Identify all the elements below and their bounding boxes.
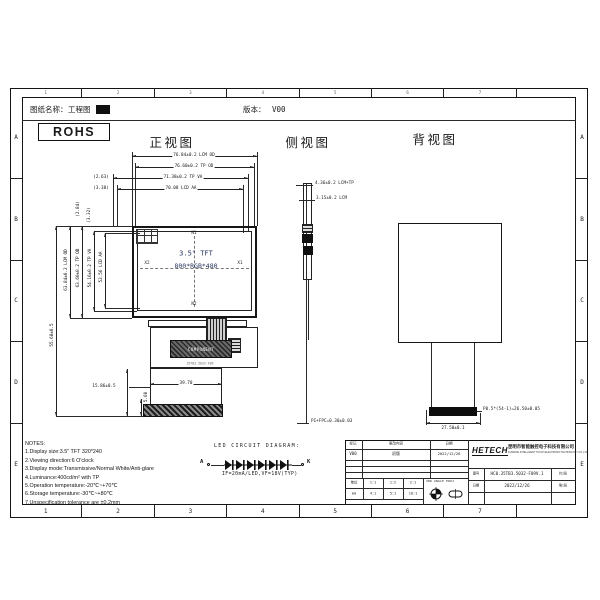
zone-col <box>517 88 588 97</box>
rev-header: 标记 <box>350 442 357 446</box>
scale-cell: 5:1 <box>390 492 396 496</box>
scale-cell: mm <box>352 492 356 496</box>
dim-label: 70.08 LCD AA <box>164 187 197 191</box>
dim-line <box>70 226 71 318</box>
zone-row: D <box>576 342 588 424</box>
dim-label: (3.38) <box>92 187 110 191</box>
notes-block: NOTES: 1.Display size:3.5" TFT 320*240 2… <box>25 440 220 507</box>
zone-strip-left: A B C D E <box>10 97 22 505</box>
mark-x1: X1 <box>237 262 242 266</box>
zone-row: A <box>576 97 588 179</box>
company-name-cn: 昆明市智能触控电子科技有限公司 <box>508 445 574 449</box>
rev-header: 日期 <box>446 442 453 446</box>
note-item: 5.Operation temperature:-20℃~+70℃ <box>25 482 220 490</box>
sheet-number: 第1张 <box>559 484 567 487</box>
polarizer-edge <box>148 320 247 327</box>
scale-cell: 1:2 <box>390 481 396 485</box>
scale-cell: 1:1 <box>370 481 376 485</box>
rev-header: 更改内容 <box>389 442 403 446</box>
cathode-terminal-icon <box>301 463 304 466</box>
rev-cell: V00 <box>349 452 356 456</box>
zone-strip-right: A B C D E <box>576 97 588 505</box>
zone-col: 2 <box>82 88 154 97</box>
date-label: 日期 <box>473 484 479 487</box>
scale-cell: 10:1 <box>409 492 417 496</box>
mark-x2: X2 <box>144 262 149 266</box>
dim-line <box>141 399 142 416</box>
led-diagram-title: LED CIRCUIT DIAGRAM: <box>214 444 300 449</box>
dim-label: 39.70 <box>179 382 194 386</box>
note-item: 3.Display mode:Transmissive/Normal White… <box>25 465 220 473</box>
note-item: 7.Unspecification tolerance are ±0.2mm <box>25 499 220 507</box>
led-anode-label: A <box>200 460 203 466</box>
sheet-total: 共1张 <box>559 472 567 475</box>
scale-cell: 2:1 <box>410 481 416 485</box>
dim-label: P0.5*(54-1)=26.50±0.05 <box>483 408 540 412</box>
notes-title: NOTES: <box>25 440 220 448</box>
dim-label: 55.68±0.5 <box>51 322 55 347</box>
version-value: V00 <box>272 106 286 114</box>
approval-stamp <box>96 105 110 114</box>
doc-name-label: 图纸名称： <box>30 106 68 114</box>
dim-label: 5.60 <box>145 391 149 403</box>
dim-label: (2.84) <box>77 200 81 218</box>
panel-size-text: 3.5" TFT <box>179 251 213 258</box>
component-sub-text: 35TB3.5032-F09 <box>187 362 214 365</box>
zone-row: B <box>576 179 588 261</box>
third-angle-projection-icon <box>428 487 464 501</box>
rev-cell: 2022/12/26 <box>438 452 461 456</box>
dim-label: (3.32) <box>88 206 92 224</box>
mark-n1: N1 <box>191 232 196 236</box>
zone-strip-top: 1 2 3 4 5 6 7 <box>10 88 588 97</box>
zone-row: B <box>10 179 22 261</box>
panel-resolution-text: 800*RGB*480 <box>174 263 217 270</box>
drawing-sheet: 1 2 3 4 5 6 7 1 2 3 4 5 6 7 A B C D E A … <box>0 0 600 600</box>
side-component-b <box>303 246 313 255</box>
dim-label: PI+FPC=0.30±0.03 <box>311 420 352 424</box>
led-spec-text: IF=20mA/LED,VF=18V(TYP) <box>222 473 298 478</box>
anode-terminal-icon <box>207 463 210 466</box>
part-number: HC0.35TB3.5032-F09V.1 <box>491 472 544 476</box>
dim-label: 4.36±0.2 LCM+TP <box>315 182 354 186</box>
projection-label: 3RD ANGLE PROJ <box>426 480 454 483</box>
back-view-title: 背视图 <box>412 134 457 147</box>
side-fpc-fold <box>302 224 313 233</box>
dim-label: 71.38±0.2 TP VA <box>163 176 204 180</box>
zone-col <box>517 505 588 518</box>
component-label: COMPONENT <box>188 347 214 352</box>
back-outline <box>398 223 502 343</box>
dim-label: 27.50±0.1 <box>440 427 465 431</box>
component-area: COMPONENT <box>170 340 232 358</box>
dim-label: 76.60±0.2 TP OD <box>174 165 215 169</box>
pn-label: 图号 <box>473 472 479 475</box>
fpc-end-connector <box>429 407 477 416</box>
dim-line <box>94 231 95 311</box>
zone-row: A <box>10 97 22 179</box>
dim-line <box>105 233 106 308</box>
scale-cell: 单位 <box>351 481 358 485</box>
note-item: 4.Luminance:400cd/m² with TP <box>25 474 220 482</box>
pin-grid-icon <box>136 229 158 244</box>
dim-label: 15.86±0.5 <box>91 385 116 389</box>
dim-line <box>56 226 57 416</box>
zone-col: 6 <box>372 505 444 518</box>
zone-row: E <box>576 424 588 505</box>
version-label: 版本： <box>243 106 266 114</box>
zone-col: 6 <box>372 88 444 97</box>
zone-col: 7 <box>444 505 516 518</box>
dim-line <box>127 369 128 416</box>
front-view-title: 正视图 <box>149 137 194 150</box>
rev-cell: 初版 <box>392 452 400 456</box>
fpc-tail-outline <box>150 368 222 405</box>
dim-label: 76.84±0.2 LCM OD <box>172 154 215 158</box>
scale-cell: 4:1 <box>370 492 376 496</box>
company-logo: HETECH <box>472 447 508 456</box>
zone-col: 4 <box>227 505 299 518</box>
zone-row: C <box>10 261 22 343</box>
dim-label: 54.16±0.2 TP VA <box>89 248 93 289</box>
diode-chain-icon <box>224 460 292 470</box>
zone-col: 3 <box>155 88 227 97</box>
zone-col: 4 <box>227 88 299 97</box>
rohs-badge: ROHS <box>38 123 110 141</box>
stiffener <box>143 404 223 417</box>
zone-col: 1 <box>10 88 82 97</box>
dim-label: 63.84±0.2 LCM OD <box>65 248 69 291</box>
company-name-en: KUNMING INTELLIGENT TOUCH ELECTRONIC TEC… <box>508 452 588 454</box>
zone-col: 7 <box>444 88 516 97</box>
dim-label: (2.63) <box>92 176 110 180</box>
zone-col: 5 <box>300 505 372 518</box>
rohs-label: ROHS <box>53 125 95 139</box>
led-cathode-label: K <box>307 460 310 466</box>
dim-label: 3.15±0.2 LCM <box>316 197 347 201</box>
zone-row: C <box>576 261 588 343</box>
dim-label: 63.60±0.2 TP OD <box>77 248 81 289</box>
note-item: 6.Storage temperature:-30℃~+80℃ <box>25 490 220 498</box>
zone-row: D <box>10 342 22 424</box>
doc-name-value: 工程图 <box>68 106 91 114</box>
side-view-title: 侧视图 <box>285 137 330 150</box>
zone-row: E <box>10 424 22 505</box>
dim-label: 52.56 LCD AA <box>100 250 104 283</box>
dim-line <box>82 226 83 318</box>
note-item: 2.Viewing direction:6 O'clock <box>25 457 220 465</box>
side-component-a <box>302 234 313 243</box>
note-item: 1.Display size:3.5" TFT 320*240 <box>25 448 220 456</box>
mark-n2: N2 <box>191 303 196 307</box>
zone-col: 5 <box>300 88 372 97</box>
date-value: 2022/12/26 <box>504 484 529 488</box>
dim-line <box>426 423 480 424</box>
